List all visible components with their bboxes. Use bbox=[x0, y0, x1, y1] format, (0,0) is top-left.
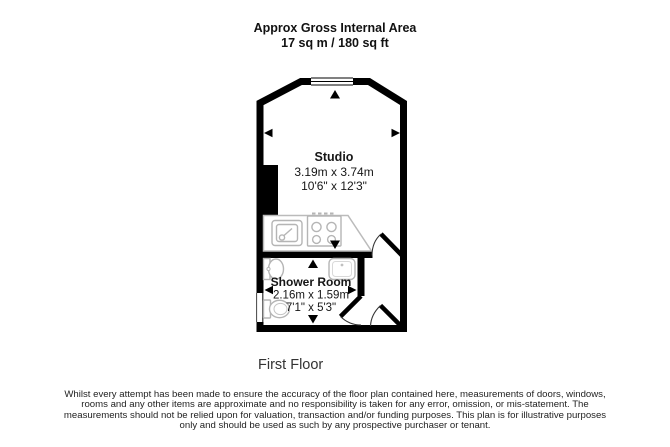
floorplan-drawing: Studio 3.19m x 3.74m 10'6" x 12'3" Showe… bbox=[0, 0, 670, 447]
window-left-icon bbox=[256, 293, 263, 322]
studio-room-name: Studio bbox=[315, 150, 354, 164]
studio-room-metric: 3.19m x 3.74m bbox=[294, 165, 373, 179]
chimney-breast bbox=[257, 165, 279, 222]
divider-wall bbox=[257, 251, 373, 258]
floorplan-page: Approx Gross Internal Area 17 sq m / 180… bbox=[0, 0, 670, 447]
studio-room-imperial: 10'6" x 12'3" bbox=[301, 179, 367, 193]
window-top-icon bbox=[311, 77, 353, 86]
shower-room-wall bbox=[358, 251, 365, 296]
shower-room-imperial: 7'1" x 5'3" bbox=[286, 302, 336, 314]
shower-room-metric: 2.16m x 1.59m bbox=[273, 290, 349, 302]
floor-label: First Floor bbox=[258, 357, 323, 373]
kitchen-sink-icon bbox=[272, 221, 302, 246]
disclaimer-text: Whilst every attempt has been made to en… bbox=[55, 390, 615, 432]
shower-room-name: Shower Room bbox=[271, 275, 352, 289]
